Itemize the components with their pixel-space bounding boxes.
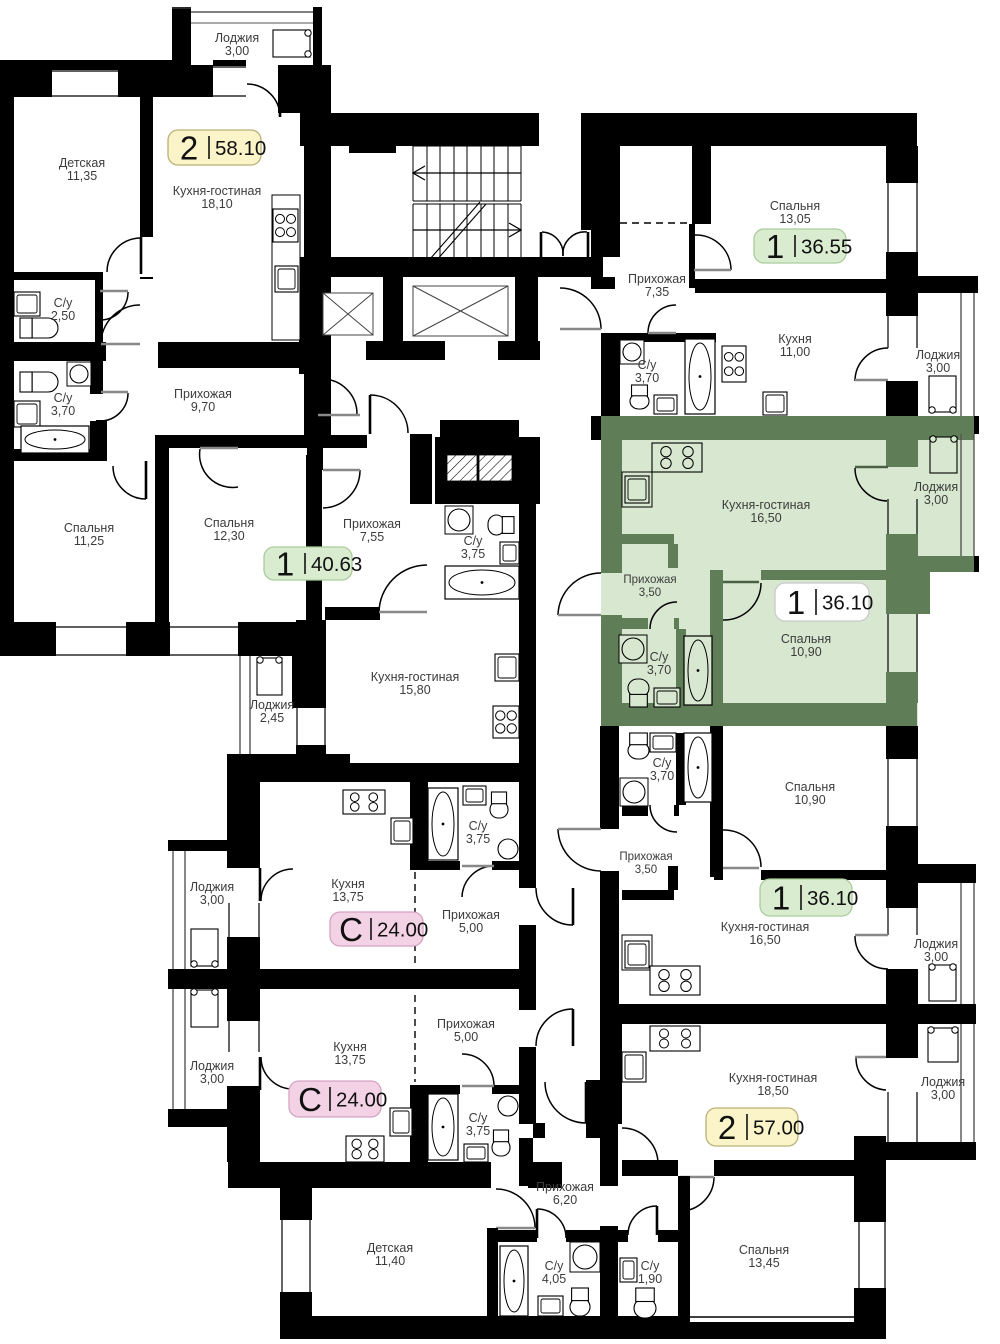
svg-text:36.10: 36.10 <box>807 887 858 910</box>
svg-text:Спальня: Спальня <box>781 632 831 646</box>
svg-text:36.10: 36.10 <box>822 591 873 614</box>
svg-text:16,50: 16,50 <box>749 933 780 947</box>
svg-text:10,90: 10,90 <box>790 645 821 659</box>
svg-text:40.63: 40.63 <box>311 553 362 576</box>
svg-text:Кухня: Кухня <box>333 1040 366 1054</box>
svg-text:С/у: С/у <box>650 650 670 664</box>
svg-text:Лоджия: Лоджия <box>914 480 958 494</box>
svg-text:3,00: 3,00 <box>924 493 948 507</box>
svg-text:3,50: 3,50 <box>635 864 657 876</box>
svg-text:Прихожая: Прихожая <box>442 908 500 922</box>
svg-text:3,00: 3,00 <box>931 1088 955 1102</box>
svg-text:Детская: Детская <box>59 156 105 170</box>
svg-text:3,70: 3,70 <box>635 371 659 385</box>
svg-text:58.10: 58.10 <box>215 137 266 160</box>
svg-text:Лоджия: Лоджия <box>921 1075 965 1089</box>
svg-text:Кухня-гостиная: Кухня-гостиная <box>722 498 810 512</box>
svg-text:Прихожая: Прихожая <box>437 1017 495 1031</box>
svg-text:Спальня: Спальня <box>739 1243 789 1257</box>
svg-text:Кухня: Кухня <box>778 332 811 346</box>
svg-text:C: C <box>339 911 363 948</box>
svg-text:Прихожая: Прихожая <box>536 1180 594 1194</box>
svg-text:57.00: 57.00 <box>753 1116 804 1139</box>
svg-text:С/у: С/у <box>469 819 489 833</box>
svg-text:Спальня: Спальня <box>204 516 254 530</box>
svg-text:10,90: 10,90 <box>794 793 825 807</box>
svg-text:3,00: 3,00 <box>225 44 249 58</box>
svg-text:11,00: 11,00 <box>780 345 810 359</box>
svg-text:2: 2 <box>718 1109 736 1146</box>
svg-text:13,45: 13,45 <box>748 1256 779 1270</box>
svg-text:36.55: 36.55 <box>801 235 852 258</box>
svg-text:Прихожая: Прихожая <box>619 851 672 863</box>
svg-text:Кухня-гостиная: Кухня-гостиная <box>721 920 809 934</box>
svg-text:2,45: 2,45 <box>260 711 284 725</box>
svg-text:13,75: 13,75 <box>332 890 363 904</box>
svg-text:2,50: 2,50 <box>51 309 75 323</box>
svg-text:Детская: Детская <box>367 1241 413 1255</box>
svg-text:9,70: 9,70 <box>191 400 215 414</box>
svg-text:Лоджия: Лоджия <box>916 348 960 362</box>
svg-text:3,75: 3,75 <box>466 832 490 846</box>
svg-text:6,20: 6,20 <box>553 1193 577 1207</box>
svg-text:Прихожая: Прихожая <box>174 387 232 401</box>
svg-text:24.00: 24.00 <box>377 918 428 941</box>
svg-text:4,05: 4,05 <box>542 1272 566 1286</box>
svg-text:Прихожая: Прихожая <box>343 517 401 531</box>
svg-text:С/у: С/у <box>653 756 673 770</box>
svg-text:13,05: 13,05 <box>779 212 810 226</box>
svg-text:5,00: 5,00 <box>459 921 483 935</box>
svg-text:Лоджия: Лоджия <box>215 31 259 45</box>
svg-text:2: 2 <box>180 129 198 166</box>
svg-text:1,90: 1,90 <box>638 1272 662 1286</box>
svg-text:С/у: С/у <box>545 1259 565 1273</box>
svg-text:3,70: 3,70 <box>650 769 674 783</box>
svg-text:24.00: 24.00 <box>336 1088 387 1111</box>
svg-text:18,50: 18,50 <box>757 1084 788 1098</box>
svg-text:Лоджия: Лоджия <box>250 698 294 712</box>
svg-text:С/у: С/у <box>464 534 484 548</box>
svg-text:7,35: 7,35 <box>645 285 669 299</box>
svg-text:3,00: 3,00 <box>200 1072 224 1086</box>
svg-text:7,55: 7,55 <box>360 530 384 544</box>
svg-text:Спальня: Спальня <box>64 521 114 535</box>
svg-text:3,00: 3,00 <box>926 361 950 375</box>
svg-text:С/у: С/у <box>469 1111 489 1125</box>
svg-text:Кухня-гостиная: Кухня-гостиная <box>729 1071 817 1085</box>
svg-text:Лоджия: Лоджия <box>914 937 958 951</box>
svg-text:Прихожая: Прихожая <box>623 574 676 586</box>
svg-text:Кухня-гостиная: Кухня-гостиная <box>371 670 459 684</box>
svg-text:13,75: 13,75 <box>334 1053 365 1067</box>
svg-text:3,70: 3,70 <box>647 663 671 677</box>
svg-text:Лоджия: Лоджия <box>190 1059 234 1073</box>
svg-text:С/у: С/у <box>54 296 74 310</box>
svg-text:11,35: 11,35 <box>67 169 97 183</box>
svg-text:3,00: 3,00 <box>924 950 948 964</box>
svg-text:11,40: 11,40 <box>375 1254 405 1268</box>
svg-text:Лоджия: Лоджия <box>190 880 234 894</box>
svg-text:C: C <box>298 1081 322 1118</box>
svg-text:Прихожая: Прихожая <box>628 272 686 286</box>
svg-text:1: 1 <box>766 228 784 265</box>
svg-text:1: 1 <box>276 545 294 582</box>
svg-text:С/у: С/у <box>638 358 658 372</box>
svg-text:3,75: 3,75 <box>466 1124 490 1138</box>
svg-text:15,80: 15,80 <box>399 683 430 697</box>
svg-text:Спальня: Спальня <box>770 199 820 213</box>
svg-text:Спальня: Спальня <box>785 780 835 794</box>
svg-text:12,30: 12,30 <box>213 529 244 543</box>
svg-text:1: 1 <box>787 584 805 621</box>
svg-text:3,00: 3,00 <box>200 893 224 907</box>
svg-text:3,70: 3,70 <box>51 404 75 418</box>
svg-text:Кухня-гостиная: Кухня-гостиная <box>173 184 261 198</box>
svg-text:16,50: 16,50 <box>750 511 781 525</box>
svg-text:Кухня: Кухня <box>331 877 364 891</box>
svg-text:11,25: 11,25 <box>74 534 104 548</box>
svg-text:18,10: 18,10 <box>201 197 232 211</box>
svg-text:1: 1 <box>772 879 790 916</box>
svg-text:С/у: С/у <box>641 1259 661 1273</box>
svg-text:С/у: С/у <box>54 391 74 405</box>
svg-text:5,00: 5,00 <box>454 1030 478 1044</box>
svg-text:3,75: 3,75 <box>461 547 485 561</box>
svg-text:3,50: 3,50 <box>639 587 661 599</box>
